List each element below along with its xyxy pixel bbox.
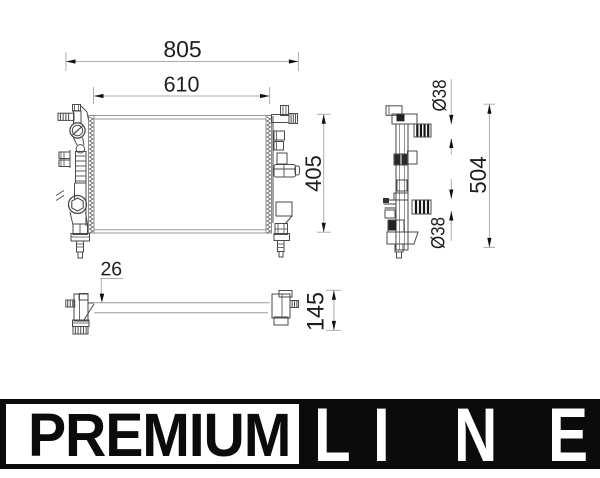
svg-text:Ø38: Ø38 [429, 80, 451, 112]
svg-text:610: 610 [164, 72, 200, 96]
svg-text:805: 805 [163, 36, 201, 62]
svg-text:26: 26 [100, 258, 122, 280]
svg-text:405: 405 [301, 155, 326, 192]
svg-text:145: 145 [303, 292, 330, 331]
svg-text:Ø38: Ø38 [428, 217, 450, 249]
svg-text:504: 504 [465, 156, 491, 194]
